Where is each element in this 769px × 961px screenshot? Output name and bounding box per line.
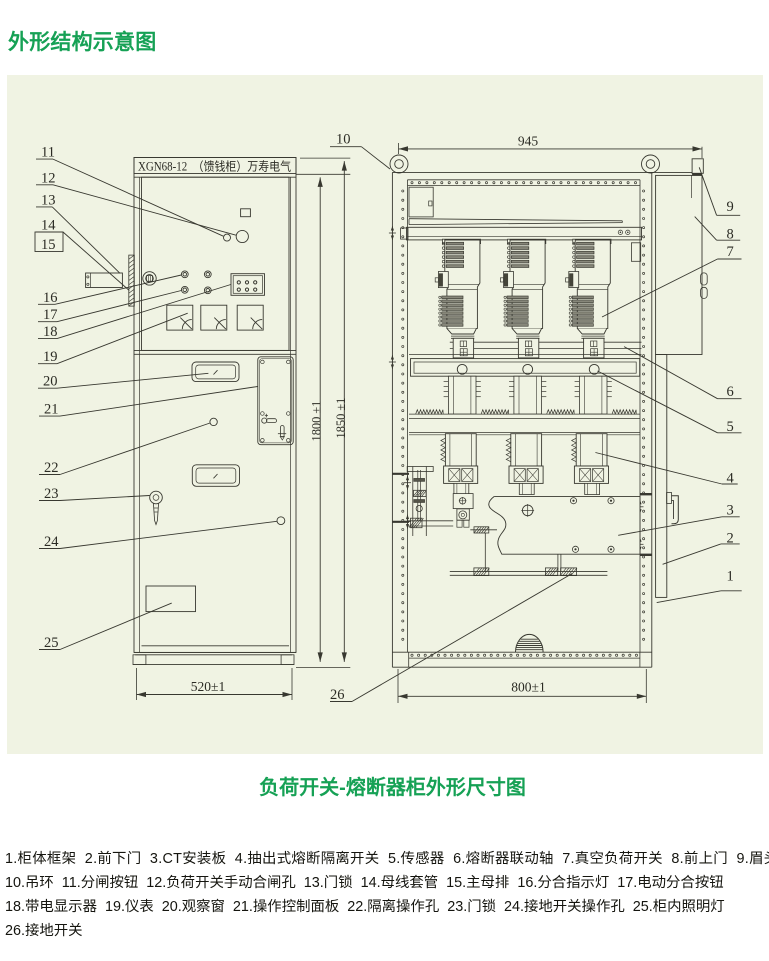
svg-text:10: 10 — [336, 132, 351, 148]
svg-text:25: 25 — [44, 635, 59, 651]
svg-text:1800 ±1: 1800 ±1 — [310, 401, 324, 442]
svg-text:9: 9 — [727, 199, 734, 215]
svg-text:22: 22 — [44, 460, 59, 476]
svg-text:19: 19 — [43, 349, 58, 365]
svg-text:17: 17 — [43, 307, 58, 323]
svg-text:21: 21 — [44, 402, 59, 418]
svg-text:15: 15 — [41, 237, 56, 253]
svg-text:12: 12 — [41, 170, 56, 186]
svg-text:1: 1 — [727, 569, 734, 585]
svg-text:13: 13 — [41, 192, 56, 208]
svg-text:3: 3 — [727, 503, 734, 519]
svg-text:20: 20 — [43, 374, 58, 390]
svg-text:16: 16 — [43, 290, 58, 306]
svg-text:24: 24 — [44, 534, 59, 550]
svg-text:26: 26 — [330, 687, 345, 703]
svg-text:800±1: 800±1 — [511, 680, 545, 695]
svg-text:14: 14 — [41, 218, 56, 234]
svg-text:945: 945 — [518, 134, 539, 149]
svg-text:7: 7 — [727, 244, 734, 260]
svg-text:XGN68-12 （馈钱柜）万寿电气: XGN68-12 （馈钱柜）万寿电气 — [138, 159, 291, 174]
svg-text:520±1: 520±1 — [191, 679, 225, 694]
svg-text:18: 18 — [43, 324, 58, 340]
svg-text:6: 6 — [727, 384, 734, 400]
svg-text:1850 ±1: 1850 ±1 — [334, 398, 348, 439]
svg-text:23: 23 — [44, 486, 59, 502]
svg-text:11: 11 — [41, 145, 55, 161]
